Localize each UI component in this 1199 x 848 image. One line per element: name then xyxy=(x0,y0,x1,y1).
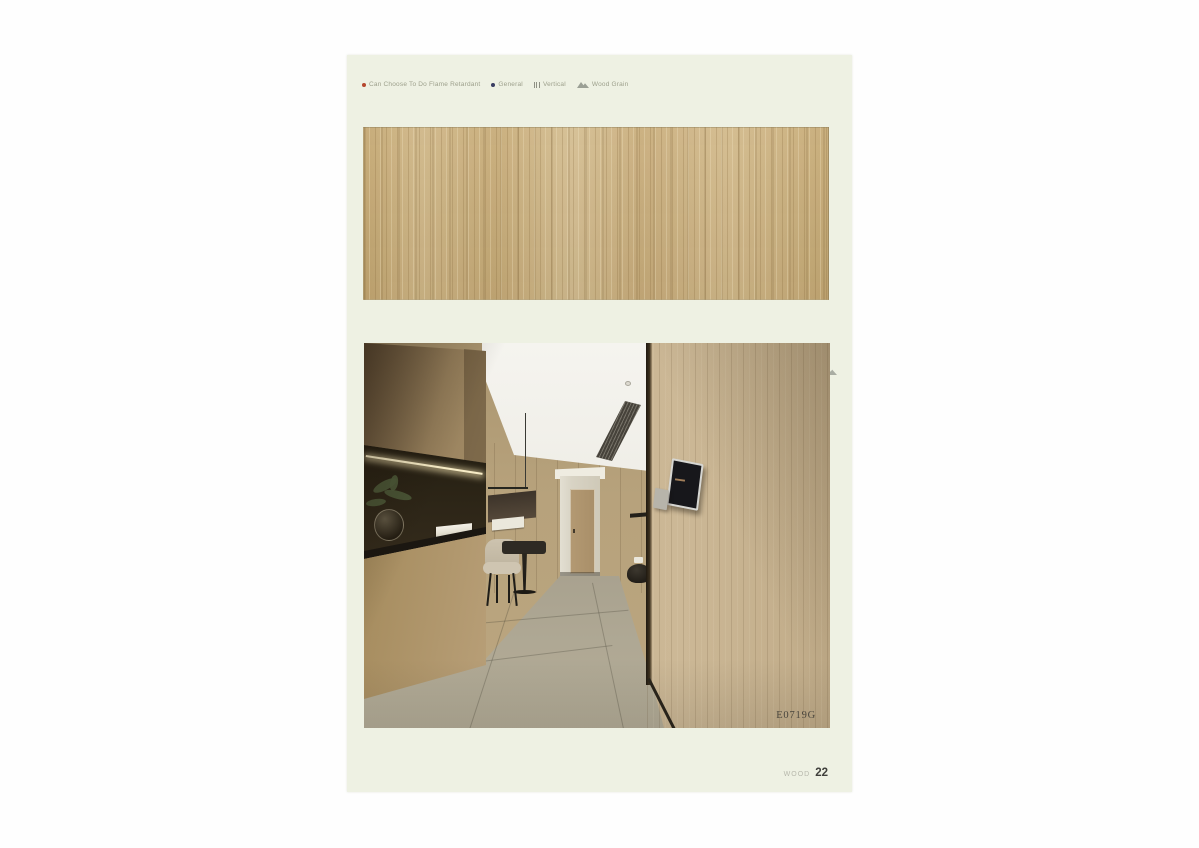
photo-wall-seam xyxy=(646,343,652,685)
photo-door-handle xyxy=(573,529,575,533)
photo-stool-object xyxy=(634,557,643,563)
photo-chair-leg xyxy=(508,575,510,603)
catalog-page: Can Choose To Do Flame Retardant General… xyxy=(347,55,852,792)
photo-right-wall-grain xyxy=(647,343,830,728)
photo-pendant-wire xyxy=(525,413,526,489)
photo-dining-table xyxy=(502,541,546,554)
wood-swatch-sample xyxy=(363,127,829,300)
legend-label: Can Choose To Do Flame Retardant xyxy=(369,81,480,88)
photo-wall-intercom-screen xyxy=(666,458,703,511)
vertical-lines-icon xyxy=(534,82,540,88)
photo-chair-seat xyxy=(483,562,521,574)
legend-item-flame-retardant: Can Choose To Do Flame Retardant xyxy=(362,81,480,88)
photo-code-label: E0719G xyxy=(776,710,816,721)
photo-light-switch xyxy=(653,488,669,511)
footer-category-label: WOOD xyxy=(784,771,811,778)
legend-label: Wood Grain xyxy=(592,81,629,88)
photo-chair-leg xyxy=(496,575,498,603)
photo-pendant-bar xyxy=(488,487,528,489)
page-footer: WOOD 22 xyxy=(784,767,828,779)
legend: Can Choose To Do Flame Retardant General… xyxy=(362,81,628,88)
footer-page-number: 22 xyxy=(815,767,828,779)
general-dot-icon xyxy=(491,83,495,87)
interior-photo: E0719G xyxy=(364,343,830,728)
legend-item-general: General xyxy=(491,81,523,88)
legend-item-wood-grain: Wood Grain xyxy=(577,81,629,88)
legend-item-vertical: Vertical xyxy=(534,81,566,88)
photo-downlight xyxy=(625,381,631,386)
legend-label: Vertical xyxy=(543,81,566,88)
photo-glass-vase xyxy=(374,509,404,541)
flame-retardant-dot-icon xyxy=(362,83,366,87)
wood-grain-icon xyxy=(577,81,589,88)
scan-canvas: Can Choose To Do Flame Retardant General… xyxy=(0,0,1199,848)
legend-label: General xyxy=(498,81,523,88)
